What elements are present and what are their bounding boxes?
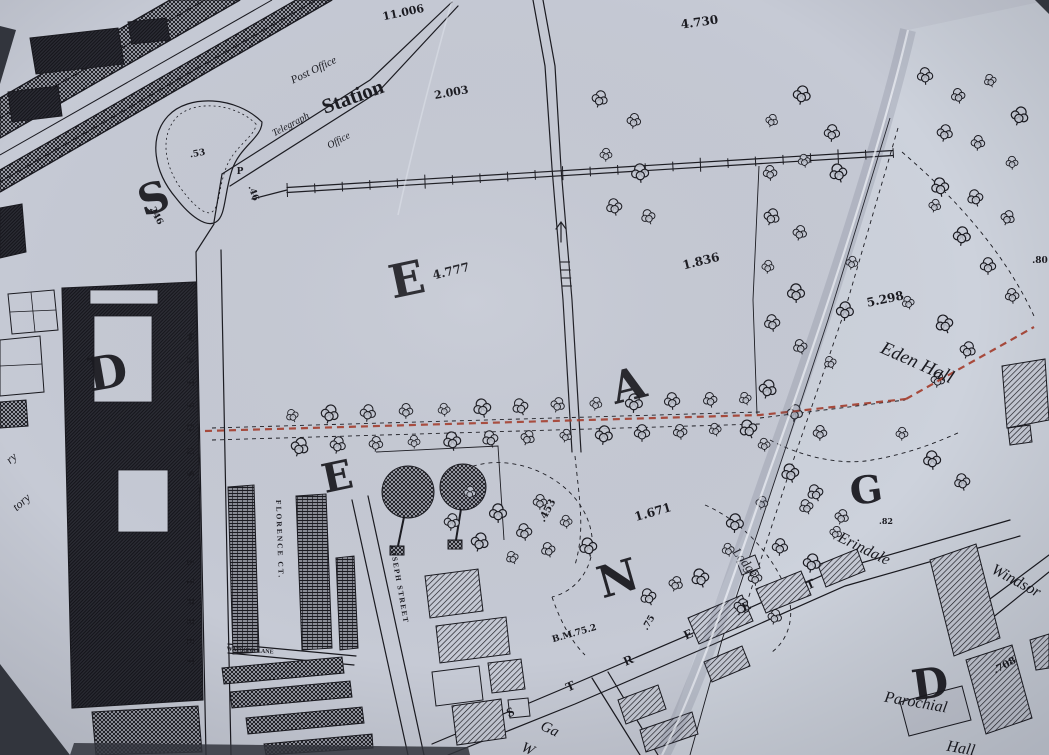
map-canvas: 11.0064.7302.003Post OfficeStationTelegr… — [0, 0, 1049, 755]
map-photo: 11.0064.7302.003Post OfficeStationTelegr… — [0, 0, 1049, 755]
photo-vignette — [0, 0, 1049, 755]
